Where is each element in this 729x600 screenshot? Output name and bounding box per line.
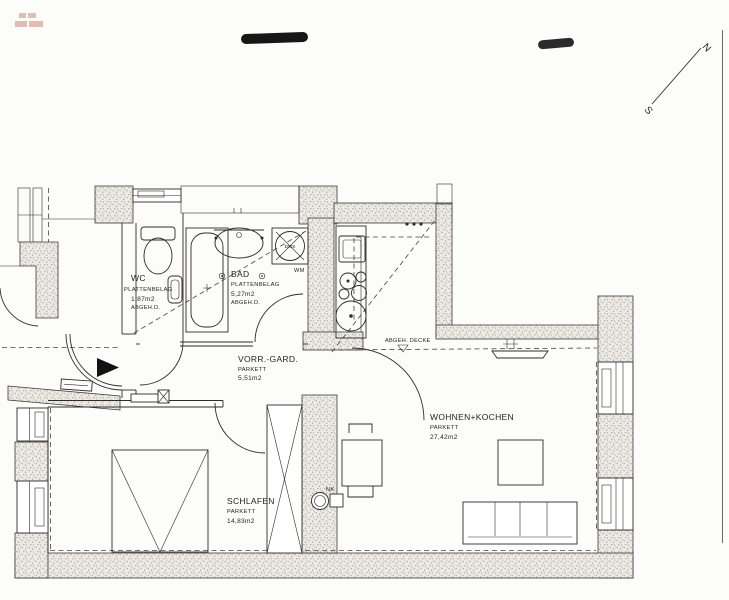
bedroom-furniture — [112, 390, 302, 553]
bedroom-door-arc — [215, 403, 265, 453]
compass: N S — [642, 42, 713, 118]
living-furniture: NK — [312, 339, 578, 544]
room-area: 5,51m2 — [238, 375, 262, 382]
radiator-bedroom — [131, 394, 158, 402]
room-ceiling: ABGEH.D. — [231, 300, 260, 306]
tub-center-mark — [203, 284, 211, 292]
toilet-bowl — [144, 238, 172, 274]
room-floor: PARKETT — [238, 367, 267, 373]
dws-label: DWS — [285, 244, 296, 249]
bed — [112, 450, 208, 552]
wc-door-arc — [140, 342, 183, 385]
room-name: BAD — [231, 269, 249, 279]
nk-label: NK — [326, 487, 334, 493]
chair-bottom — [348, 486, 373, 497]
room-label-wc: WC PLATTENBELAG 1,87m2 ABGEH.D. — [124, 273, 173, 311]
washbasin — [214, 228, 264, 258]
room-floor: PLATTENBELAG — [124, 287, 173, 293]
shower-tray-fixture: DWS — [272, 228, 308, 264]
scan-smudges — [241, 32, 575, 50]
room-label-wohnen: WOHNEN+KOCHEN PARKETT 27,42m2 — [430, 412, 514, 441]
living-door-arc — [352, 348, 424, 420]
kitchen-fixtures — [336, 222, 423, 338]
room-floor: PARKETT — [430, 425, 459, 431]
bath-fixtures: DWS WM — [186, 228, 308, 332]
floorplan-page: N S — [0, 0, 729, 600]
room-label-vorraum: VORR.-GARD. PARKETT 5,51m2 — [238, 354, 298, 382]
room-floor: PLATTENBELAG — [231, 282, 280, 288]
window-right-2 — [598, 478, 633, 530]
dining-table — [342, 440, 382, 486]
stove-burners — [339, 272, 367, 301]
floorplan-drawing: N S — [0, 0, 729, 600]
ceiling-triangle-symbol — [398, 345, 408, 352]
window-top — [133, 189, 181, 202]
room-area: 14,83m2 — [227, 518, 255, 525]
room-label-bad: BAD PLATTENBELAG 5,27m2 ABGEH.D. — [231, 269, 280, 306]
room-name: VORR.-GARD. — [238, 354, 298, 364]
room-area: 27,42m2 — [430, 434, 458, 441]
room-ceiling: ABGEH.D. — [131, 305, 160, 311]
bad-door-arc — [255, 294, 303, 342]
window-left-2 — [17, 481, 48, 533]
junction-box — [158, 390, 169, 403]
window-right-1 — [598, 362, 633, 414]
entrance-arrow — [97, 358, 119, 377]
chair-top — [349, 424, 372, 433]
room-name: WC — [131, 273, 146, 283]
window-bay-top — [181, 186, 299, 213]
room-floor: PARKETT — [227, 509, 256, 515]
room-area: 5,27m2 — [231, 291, 255, 298]
side-table — [498, 440, 543, 485]
room-name: SCHLAFEN — [227, 496, 275, 506]
bathtub — [186, 228, 228, 332]
room-name: WOHNEN+KOCHEN — [430, 412, 514, 422]
room-area: 1,87m2 — [131, 296, 155, 303]
sofa — [463, 502, 577, 544]
red-stamp — [15, 13, 43, 27]
window-left-1 — [17, 408, 48, 441]
stair-door-arc — [0, 288, 38, 326]
wardrobe — [267, 405, 302, 553]
illegible-label-plate — [61, 379, 93, 391]
compass-north-label: N — [700, 42, 713, 55]
doors — [66, 294, 424, 453]
wm-label: WM — [294, 268, 305, 274]
compass-south-label: S — [642, 105, 655, 118]
ceiling-note-label: ABGEH. DECKE — [385, 338, 431, 344]
